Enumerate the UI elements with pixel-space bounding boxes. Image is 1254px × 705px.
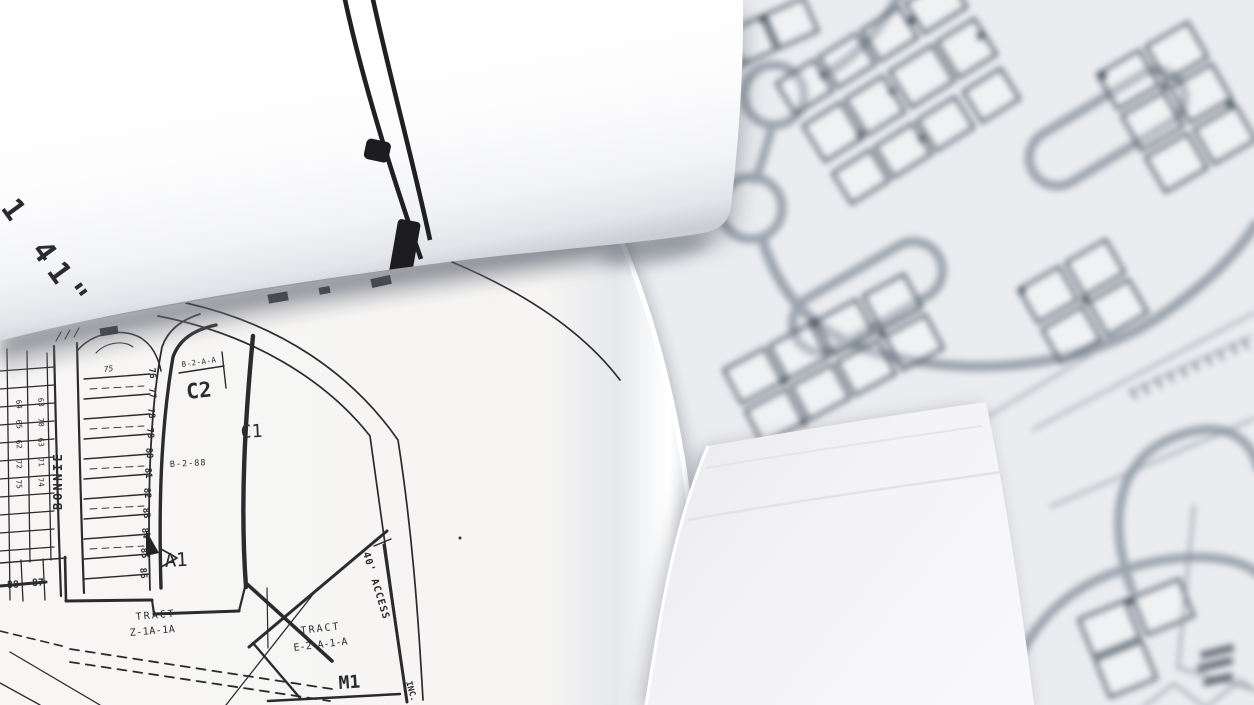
photo-blueprint-rolls: BONNIE 76 77 78 79 80 81 82 83 84 85 86 … [0,0,1254,705]
top-rolled-sheet [0,0,743,341]
top-sheet-layer: 1 41" [0,0,1254,705]
